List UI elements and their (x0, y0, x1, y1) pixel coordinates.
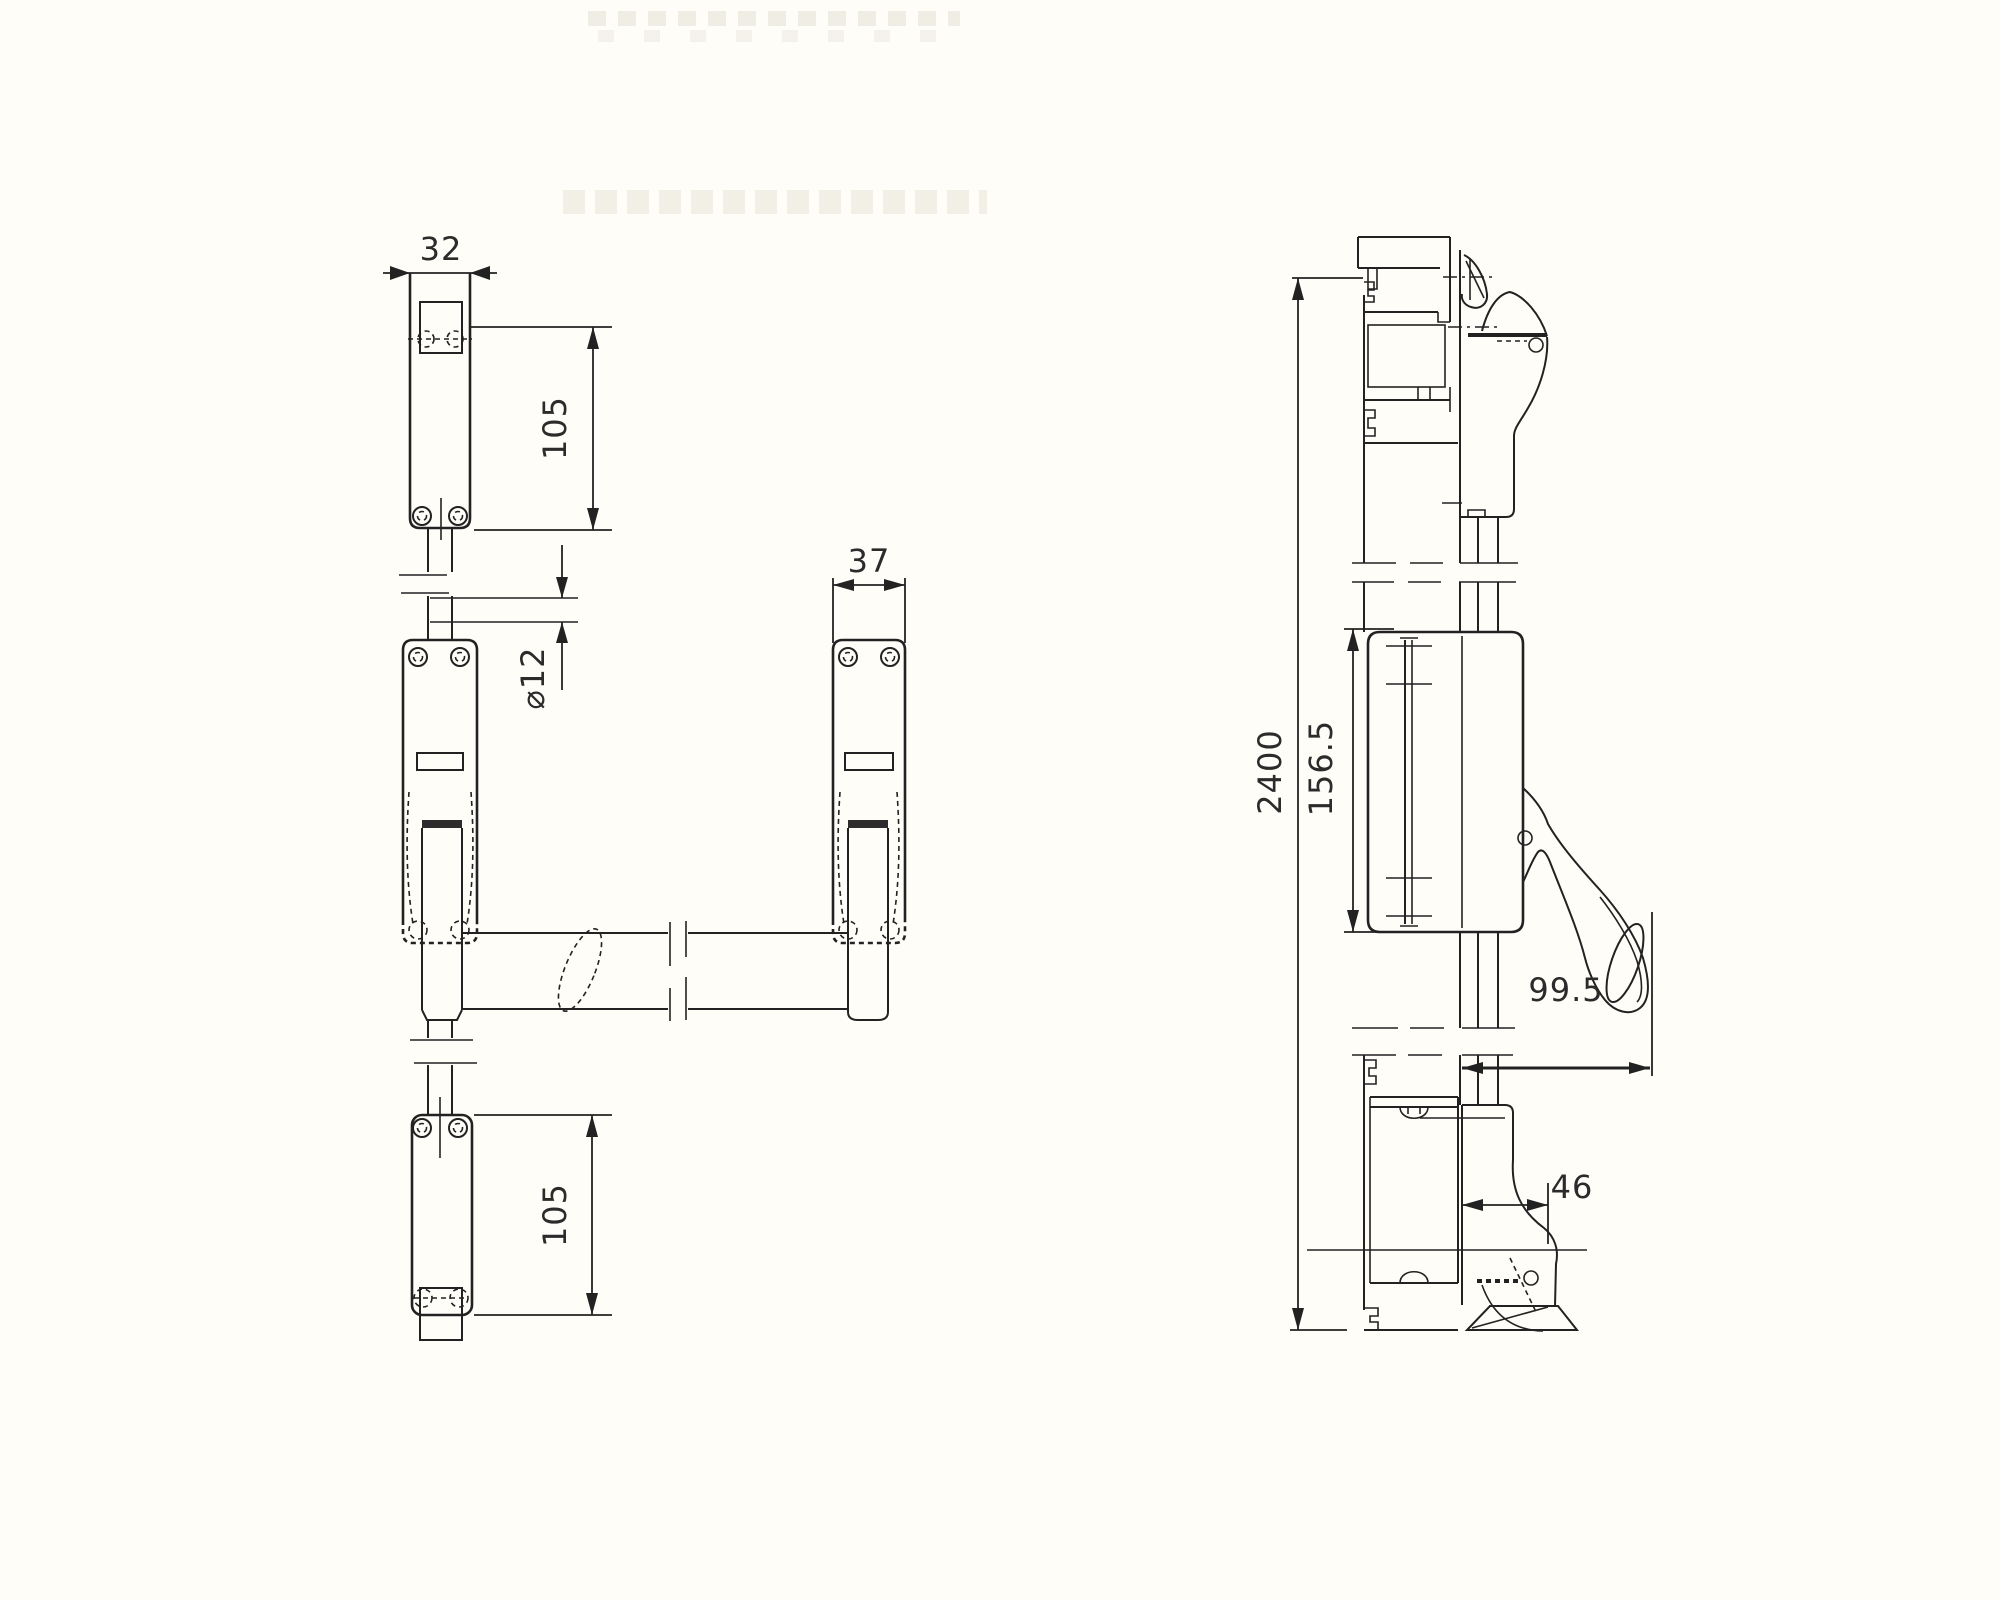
crossbar (462, 921, 848, 1021)
dimension-top-plate-width: 32 (383, 230, 497, 280)
pivot-pin (1529, 338, 1543, 352)
screw-icon (413, 1119, 431, 1137)
screw-icon (413, 507, 431, 525)
top-frame-section (1358, 237, 1460, 563)
dimension-lock-body-height: 156.5 (1302, 629, 1461, 932)
pivot-pin (1524, 1271, 1538, 1285)
dimension-bottom-plate-height: 105 (474, 1115, 612, 1315)
side-view: 2400 (1251, 237, 1652, 1331)
dimension-bottom-projection: 46 (1462, 1168, 1593, 1244)
bottom-strike-plate (412, 1097, 472, 1340)
dim-label-105-top: 105 (536, 396, 574, 460)
left-push-pad (422, 820, 462, 1038)
dim-label-156-5: 156.5 (1302, 720, 1340, 817)
screw-icon (449, 507, 467, 525)
dimension-rod-diameter: ⌀12 (514, 545, 568, 709)
screw-icon (881, 648, 899, 666)
top-keeper (420, 302, 462, 353)
handle-slot (1599, 920, 1651, 1006)
top-strike-plate (408, 273, 472, 540)
upper-break-lines (1352, 563, 1518, 632)
latch-foot (1467, 1306, 1577, 1330)
screw-icon (881, 921, 899, 939)
screw-icon (839, 648, 857, 666)
screw-icon (409, 648, 427, 666)
dim-label-2400: 2400 (1251, 729, 1289, 814)
screw-icon (451, 648, 469, 666)
dimension-top-plate-height: 105 (470, 327, 612, 530)
lower-rod (410, 1040, 477, 1115)
dimension-handle-plate-width: 37 (833, 542, 905, 643)
screw-icon (449, 1119, 467, 1137)
bottom-frame-section (1307, 1055, 1587, 1330)
bottom-latch (1420, 1105, 1577, 1331)
top-latch (1442, 255, 1547, 563)
dim-label-32: 32 (420, 230, 463, 268)
right-push-pad (848, 820, 888, 1020)
right-push-plate (833, 640, 905, 943)
screw-icon (451, 921, 469, 939)
pivot-pin (1518, 831, 1532, 845)
dim-label-105-bottom: 105 (536, 1183, 574, 1247)
cylinder-slot (845, 753, 893, 770)
dim-label-99-5: 99.5 (1528, 971, 1603, 1009)
lock-body (1368, 632, 1523, 932)
screw-icon (409, 921, 427, 939)
dim-label-46: 46 (1551, 1168, 1594, 1206)
left-push-plate (403, 640, 477, 943)
upper-rod (399, 528, 578, 640)
dim-label-rod-diameter: ⌀12 (514, 647, 552, 710)
dim-label-37: 37 (848, 542, 891, 580)
technical-drawing-canvas: 32 105 ⌀12 (0, 0, 2000, 1600)
rod-break-symbol (550, 924, 611, 1017)
cylinder-slot (417, 753, 463, 770)
front-view: 32 105 ⌀12 (383, 230, 905, 1340)
